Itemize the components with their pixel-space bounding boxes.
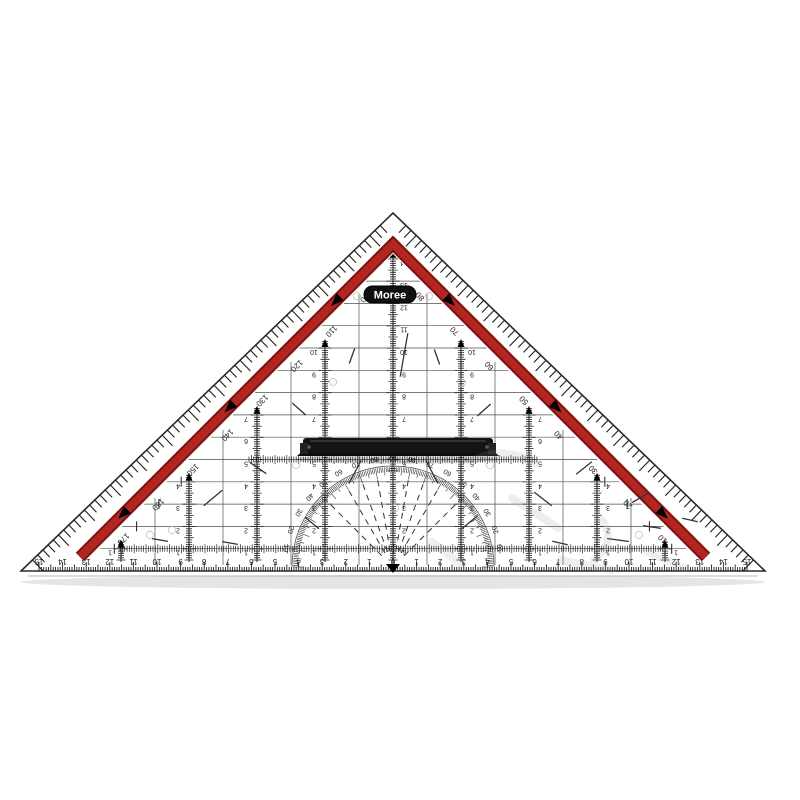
scale-column-number: 3 [606, 504, 610, 511]
set-square-ruler-image: 1514131211109876543210123456789101112131… [0, 0, 800, 800]
scale-column-number: 1 [108, 549, 112, 556]
scale-column-number: 4 [606, 482, 610, 489]
bottom-ruler-label: 5 [508, 557, 513, 566]
scale-column-number: 3 [176, 504, 180, 511]
scale-column-number: 4 [402, 482, 406, 489]
drop-shadow [21, 575, 765, 589]
brand-badge: Moree [364, 286, 416, 303]
scale-column-number: 6 [244, 437, 248, 444]
bottom-ruler-label: 2 [343, 557, 348, 566]
ruler-shadow [21, 575, 765, 589]
bottom-ruler-label: 7 [225, 557, 230, 566]
scale-column-number: 6 [538, 437, 542, 444]
handle-screw-left [307, 445, 311, 449]
scale-column-number: 1 [538, 549, 542, 556]
scale-column-number: 7 [312, 415, 316, 422]
bottom-ruler-label: 10 [152, 557, 161, 566]
scale-column-number: 1 [176, 549, 180, 556]
scale-column-number: 2 [402, 526, 406, 533]
protractor-degree-label: 10 [497, 543, 505, 552]
scale-column-number: 4 [538, 482, 542, 489]
bottom-ruler-label: 9 [178, 557, 183, 566]
protractor-degree-label: 10 [281, 544, 289, 553]
bottom-ruler-label: 5 [272, 557, 277, 566]
scale-column-number: 9 [402, 370, 406, 377]
scale-column-number: 3 [538, 504, 542, 511]
handle-bar [303, 438, 493, 453]
bottom-ruler-label: 14 [718, 557, 727, 566]
bottom-ruler-label: 15 [34, 557, 43, 566]
scale-column-number: 9 [470, 370, 474, 377]
scale-column-number: 3 [244, 504, 248, 511]
scale-column-number: 2 [312, 526, 316, 533]
bottom-ruler-label: 2 [437, 557, 442, 566]
product-photo: 1514131211109876543210123456789101112131… [0, 0, 800, 800]
scale-column-number: 4 [312, 482, 316, 489]
scale-column-number: 2 [538, 526, 542, 533]
bottom-ruler-label: 1 [367, 557, 372, 566]
bottom-ruler-label: 10 [624, 557, 633, 566]
scale-column-number: 9 [312, 370, 316, 377]
scale-column-number: 2 [244, 526, 248, 533]
scale-column-number: 1 [674, 549, 678, 556]
scale-column-number: 12 [400, 303, 408, 310]
scale-column-number: 10 [310, 348, 318, 355]
scale-column-number: 1 [312, 549, 316, 556]
scale-column-number: 8 [402, 393, 406, 400]
bottom-ruler-label: 6 [249, 557, 254, 566]
bottom-ruler-label: 11 [129, 557, 138, 566]
handle-end-left [300, 443, 308, 454]
scale-column-number: 5 [244, 460, 248, 467]
bottom-ruler-label: 1 [414, 557, 419, 566]
scale-column-number: 4 [470, 482, 474, 489]
bottom-ruler-label: 8 [201, 557, 206, 566]
bottom-ruler-label: 6 [532, 557, 537, 566]
bottom-ruler-label: 3 [319, 557, 324, 566]
scale-column-number: 11 [400, 326, 407, 333]
scale-column-number: 7 [470, 415, 474, 422]
scale-column-number: 4 [176, 482, 180, 489]
scale-column-number: 7 [402, 415, 406, 422]
handle-screw-right [485, 445, 489, 449]
bottom-ruler-label: 15 [742, 557, 751, 566]
scale-column-number: 8 [470, 393, 474, 400]
scale-column-number: 1 [244, 549, 248, 556]
scale-column-number: 4 [244, 482, 248, 489]
scale-column-number: 2 [470, 526, 474, 533]
scale-column-number: 2 [176, 526, 180, 533]
scale-column-number: 8 [312, 393, 316, 400]
brand-badge-label: Moree [374, 290, 406, 302]
bottom-ruler-label: 12 [105, 557, 114, 566]
scale-column-number: 7 [244, 415, 248, 422]
bottom-ruler-label: 14 [58, 557, 67, 566]
scale-column-number: 10 [468, 348, 476, 355]
scale-column-number: 1 [470, 549, 474, 556]
scale-column-number: 7 [538, 415, 542, 422]
